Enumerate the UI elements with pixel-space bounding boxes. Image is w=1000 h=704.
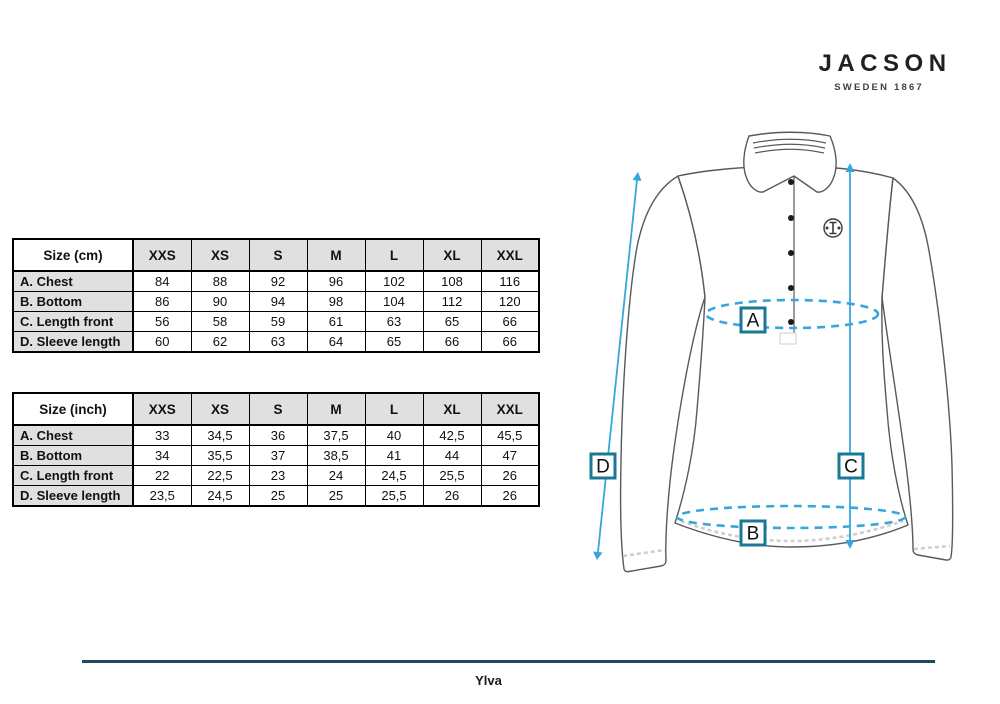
- measurement-value: 90: [191, 292, 249, 312]
- measurement-label: C. Length front: [13, 466, 133, 486]
- size-column-header: XS: [191, 393, 249, 425]
- size-column-header: M: [307, 393, 365, 425]
- brand-tagline: SWEDEN 1867: [813, 82, 943, 93]
- button: [788, 285, 794, 291]
- measurement-value: 102: [365, 271, 423, 292]
- button: [788, 319, 794, 325]
- measurement-value: 112: [423, 292, 481, 312]
- button: [788, 250, 794, 256]
- measurement-value: 60: [133, 332, 191, 353]
- measurement-value: 42,5: [423, 425, 481, 446]
- measurement-value: 45,5: [481, 425, 539, 446]
- measurement-value: 66: [481, 332, 539, 353]
- measurement-value: 25,5: [365, 486, 423, 507]
- measurement-value: 86: [133, 292, 191, 312]
- measurement-value: 22,5: [191, 466, 249, 486]
- measurement-label: B. Bottom: [13, 292, 133, 312]
- measurement-value: 66: [481, 312, 539, 332]
- brand-name: JACSON: [813, 50, 943, 78]
- measurement-value: 23: [249, 466, 307, 486]
- measurement-value: 41: [365, 446, 423, 466]
- measurement-value: 104: [365, 292, 423, 312]
- measurement-value: 24: [307, 466, 365, 486]
- placket-end: [780, 333, 796, 344]
- measure-d-label: D: [596, 457, 610, 478]
- measurement-value: 23,5: [133, 486, 191, 507]
- measurement-value: 26: [481, 466, 539, 486]
- measurement-value: 63: [249, 332, 307, 353]
- table-row: D. Sleeve length23,524,5252525,52626: [13, 486, 539, 507]
- measurement-label: C. Length front: [13, 312, 133, 332]
- table-row: B. Bottom3435,53738,5414447: [13, 446, 539, 466]
- measure-a-label: A: [747, 311, 760, 332]
- measurement-value: 63: [365, 312, 423, 332]
- measurement-label: A. Chest: [13, 425, 133, 446]
- table-row: A. Chest84889296102108116: [13, 271, 539, 292]
- arrowhead-down-icon: [593, 552, 603, 561]
- size-table-cm: Size (cm)XXSXSSMLXLXXLA. Chest8488929610…: [12, 238, 540, 353]
- measurement-value: 36: [249, 425, 307, 446]
- measurement-value: 59: [249, 312, 307, 332]
- shirt-body: [675, 166, 908, 547]
- size-column-header: XXL: [481, 239, 539, 271]
- size-column-header: S: [249, 239, 307, 271]
- measurement-value: 24,5: [191, 486, 249, 507]
- size-column-header: L: [365, 239, 423, 271]
- table-row: D. Sleeve length60626364656666: [13, 332, 539, 353]
- measurement-value: 120: [481, 292, 539, 312]
- measurement-value: 37,5: [307, 425, 365, 446]
- measurement-value: 26: [423, 486, 481, 507]
- measurement-value: 62: [191, 332, 249, 353]
- measurement-value: 98: [307, 292, 365, 312]
- measure-c-label: C: [844, 457, 858, 478]
- chest-logo: [824, 219, 842, 237]
- measurement-value: 56: [133, 312, 191, 332]
- size-column-header: M: [307, 239, 365, 271]
- size-unit-header: Size (inch): [13, 393, 133, 425]
- footer-divider: [82, 660, 935, 663]
- table-row: C. Length front56585961636566: [13, 312, 539, 332]
- table-row: B. Bottom86909498104112120: [13, 292, 539, 312]
- size-column-header: L: [365, 393, 423, 425]
- measurement-value: 65: [365, 332, 423, 353]
- arrowhead-up-icon: [846, 163, 855, 172]
- size-column-header: XS: [191, 239, 249, 271]
- measurement-value: 38,5: [307, 446, 365, 466]
- measurement-value: 25: [307, 486, 365, 507]
- measurement-value: 26: [481, 486, 539, 507]
- measurement-value: 65: [423, 312, 481, 332]
- measurement-value: 47: [481, 446, 539, 466]
- measurement-value: 22: [133, 466, 191, 486]
- shirt-measurement-diagram: A B C D: [575, 105, 1000, 595]
- product-name: Ylva: [62, 673, 915, 688]
- size-table-inch: Size (inch)XXSXSSMLXLXXLA. Chest3334,536…: [12, 392, 540, 507]
- measurement-value: 92: [249, 271, 307, 292]
- measurement-label: D. Sleeve length: [13, 486, 133, 507]
- measurement-value: 44: [423, 446, 481, 466]
- measurement-value: 33: [133, 425, 191, 446]
- measurement-label: A. Chest: [13, 271, 133, 292]
- measurement-value: 116: [481, 271, 539, 292]
- measurement-value: 58: [191, 312, 249, 332]
- size-guide-page: JACSON SWEDEN 1867 Size (cm)XXSXSSMLXLXX…: [0, 0, 1000, 704]
- measurement-value: 64: [307, 332, 365, 353]
- table-row: A. Chest3334,53637,54042,545,5: [13, 425, 539, 446]
- measurement-value: 40: [365, 425, 423, 446]
- measurement-value: 88: [191, 271, 249, 292]
- measurement-value: 25: [249, 486, 307, 507]
- measurement-value: 25,5: [423, 466, 481, 486]
- button: [788, 215, 794, 221]
- size-table-header-row: Size (cm)XXSXSSMLXLXXL: [13, 239, 539, 271]
- size-column-header: XL: [423, 239, 481, 271]
- measurement-value: 61: [307, 312, 365, 332]
- size-column-header: XXL: [481, 393, 539, 425]
- measurement-value: 96: [307, 271, 365, 292]
- table-row: C. Length front2222,5232424,525,526: [13, 466, 539, 486]
- arrowhead-down-icon: [846, 540, 855, 549]
- measure-b-label: B: [747, 524, 760, 545]
- measurement-value: 94: [249, 292, 307, 312]
- measurement-value: 34: [133, 446, 191, 466]
- measurement-value: 34,5: [191, 425, 249, 446]
- measurement-value: 37: [249, 446, 307, 466]
- arrowhead-up-icon: [633, 172, 642, 181]
- size-column-header: XL: [423, 393, 481, 425]
- measurement-value: 108: [423, 271, 481, 292]
- size-column-header: XXS: [133, 239, 191, 271]
- measurement-value: 24,5: [365, 466, 423, 486]
- size-column-header: S: [249, 393, 307, 425]
- measurement-value: 35,5: [191, 446, 249, 466]
- measurement-value: 66: [423, 332, 481, 353]
- size-unit-header: Size (cm): [13, 239, 133, 271]
- measurement-value: 84: [133, 271, 191, 292]
- brand-logo: JACSON SWEDEN 1867: [813, 50, 943, 93]
- measurement-label: B. Bottom: [13, 446, 133, 466]
- size-column-header: XXS: [133, 393, 191, 425]
- button: [788, 179, 794, 185]
- size-table-header-row: Size (inch)XXSXSSMLXLXXL: [13, 393, 539, 425]
- measurement-label: D. Sleeve length: [13, 332, 133, 353]
